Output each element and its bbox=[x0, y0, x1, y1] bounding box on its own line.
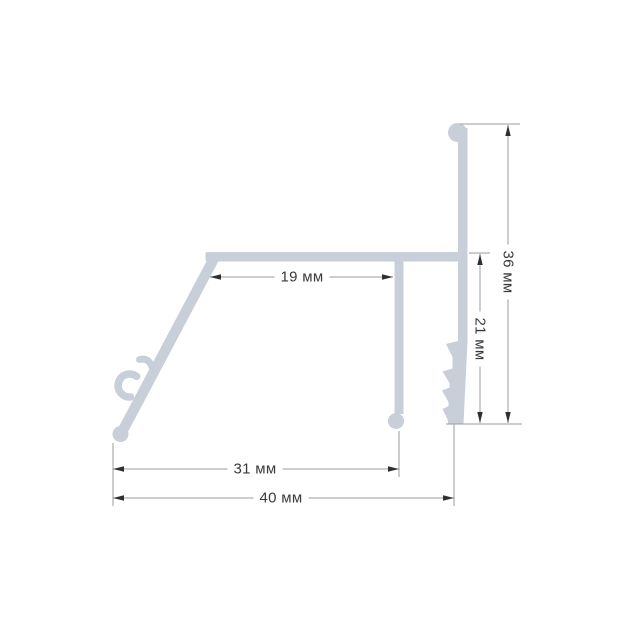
profile-slant-leg-bulb bbox=[113, 426, 129, 442]
profile-top-web bbox=[206, 252, 468, 262]
dimension-label-40mm: 40 мм bbox=[254, 489, 309, 508]
profile-right-flange bbox=[458, 128, 468, 345]
dimension-label-36mm: 36 мм bbox=[499, 245, 518, 300]
profile-drawing: 19 мм 31 мм 40 мм 21 мм 36 мм bbox=[0, 0, 630, 630]
profile-drop-leg bbox=[395, 261, 404, 414]
profile-hook-finger bbox=[140, 359, 153, 367]
arrow-36-bottom bbox=[505, 412, 510, 423]
dimension-label-31mm: 31 мм bbox=[228, 460, 283, 479]
arrow-19-right bbox=[382, 274, 393, 279]
arrow-36-top bbox=[505, 125, 510, 136]
drawing-canvas bbox=[0, 0, 630, 630]
arrow-21-top bbox=[477, 254, 482, 265]
arrow-40-left bbox=[113, 495, 124, 500]
arrow-40-right bbox=[443, 495, 454, 500]
arrow-21-bottom bbox=[477, 412, 482, 423]
dimension-label-19mm: 19 мм bbox=[275, 268, 330, 287]
dimension-label-21mm: 21 мм bbox=[471, 312, 490, 367]
arrow-19-left bbox=[210, 274, 221, 279]
profile-serrated-leg bbox=[442, 341, 468, 424]
profile-hook-arc bbox=[118, 374, 136, 397]
arrow-31-right bbox=[388, 466, 399, 471]
profile-slant-leg bbox=[122, 257, 215, 433]
profile-drop-leg-bulb bbox=[388, 413, 404, 429]
arrow-31-left bbox=[113, 466, 124, 471]
dimension-arrowheads bbox=[113, 125, 511, 501]
